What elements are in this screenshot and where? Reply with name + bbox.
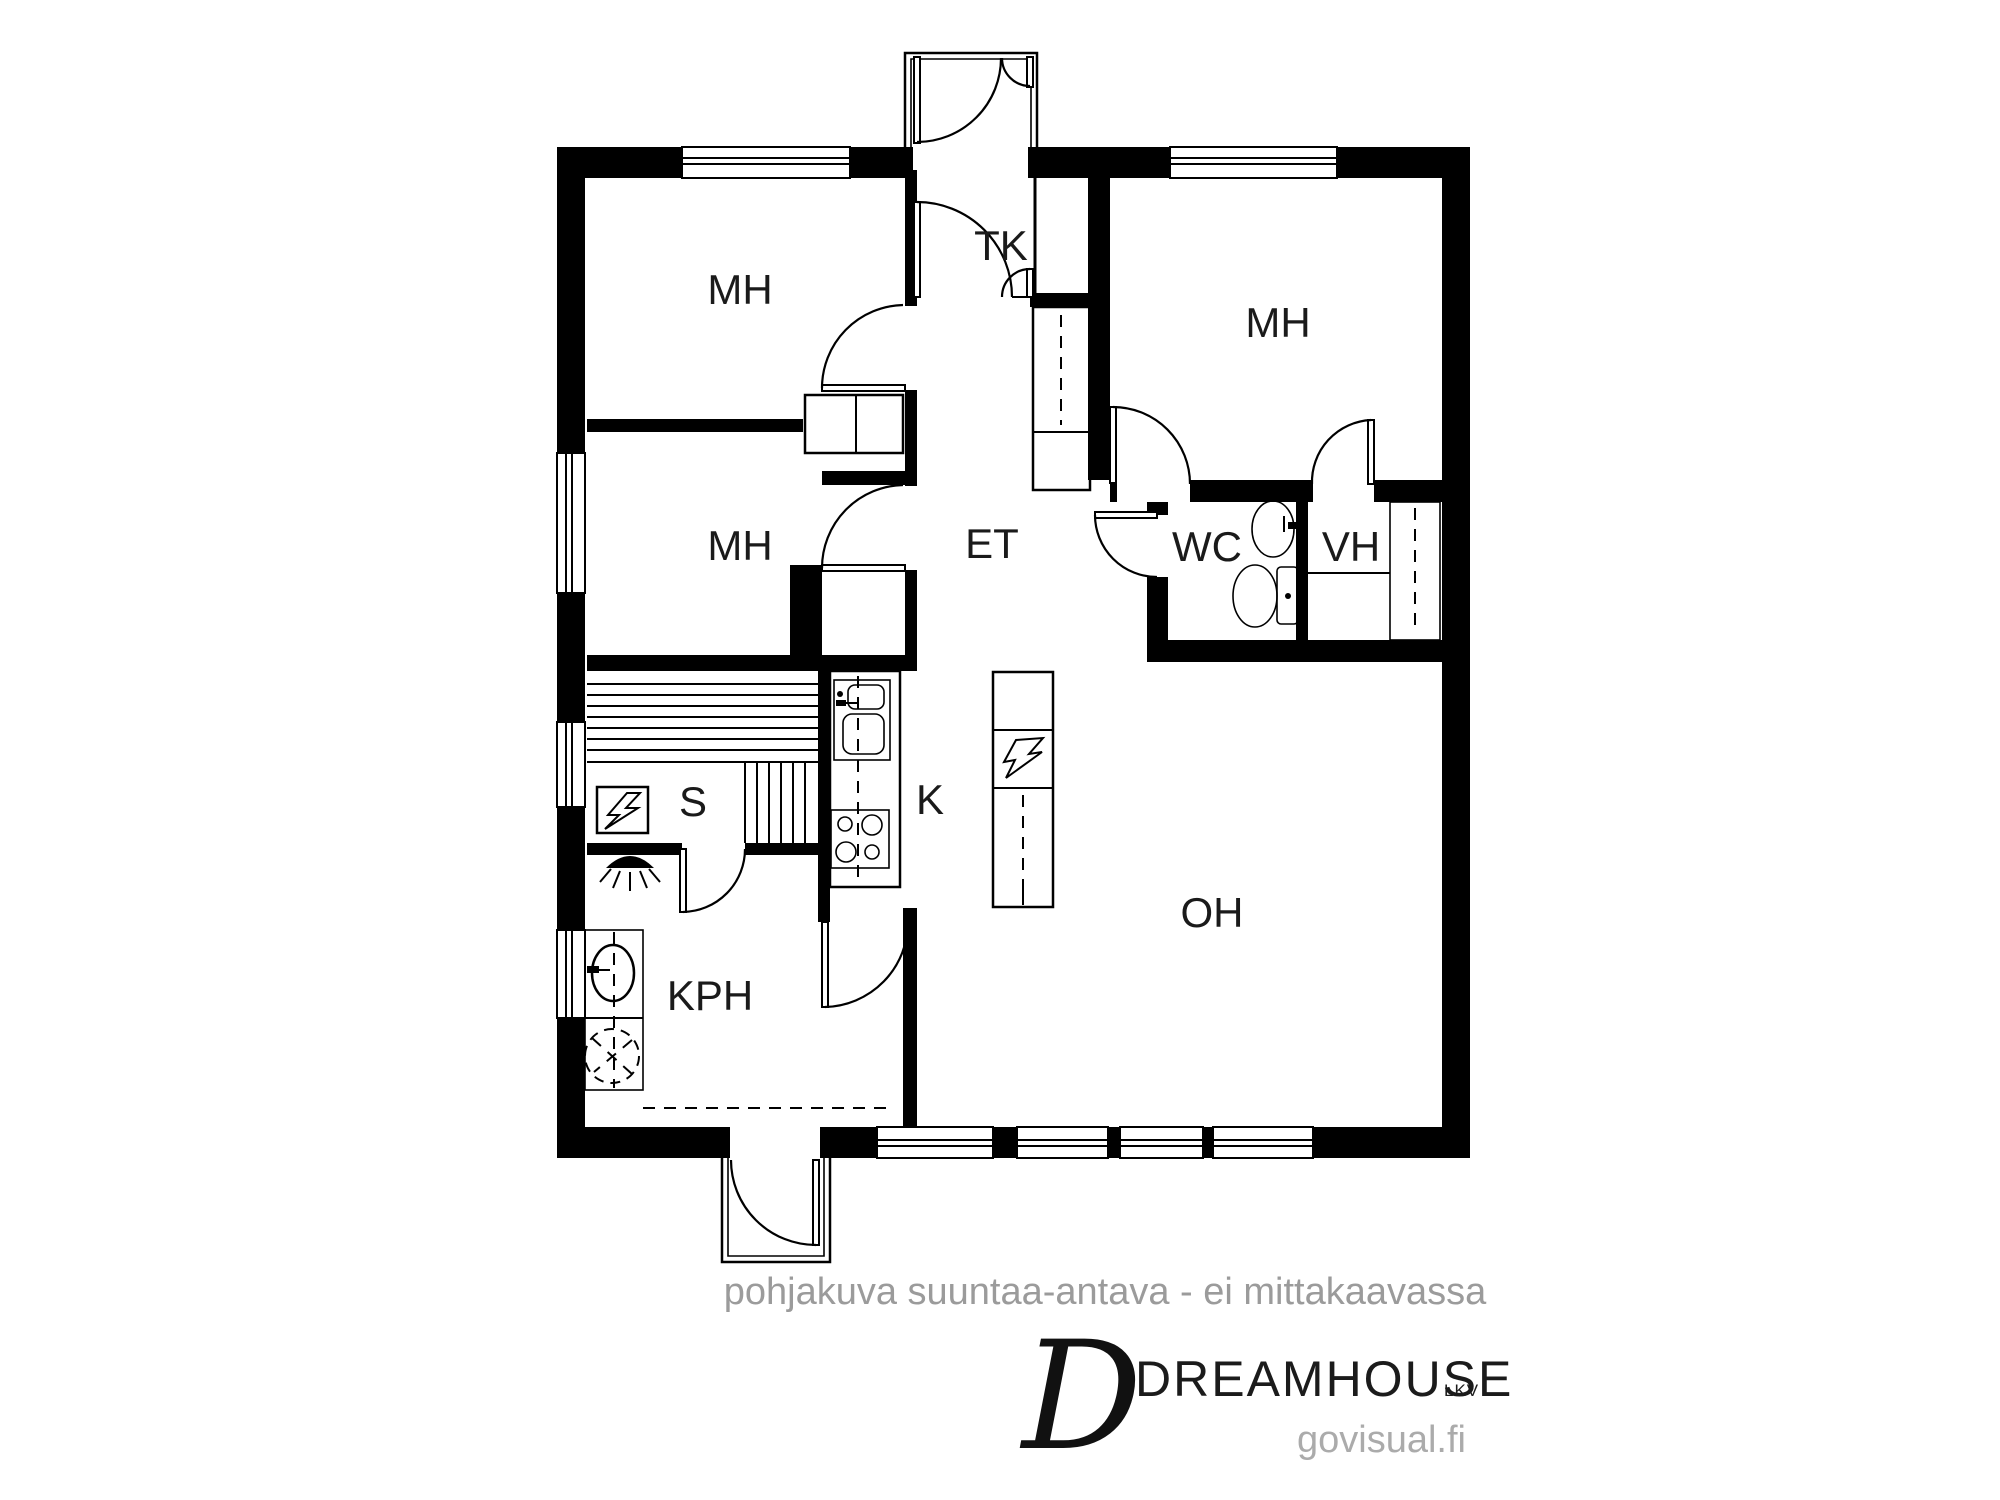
shower-icon: [600, 856, 660, 891]
room-label-toilet: WC: [1172, 523, 1242, 570]
room-label-entry-hall: ET: [965, 520, 1019, 567]
door-toilet: [1095, 512, 1157, 577]
window-sauna: [557, 722, 585, 807]
window-living-2: [1017, 1127, 1108, 1158]
bathroom-exterior-door-gap: [730, 1126, 820, 1159]
door-closet-room: [1312, 420, 1374, 484]
disclaimer-text: pohjakuva suuntaa-antava - ei mittakaava…: [724, 1271, 1487, 1313]
door-bathroom: [822, 922, 908, 1007]
wc-sink-icon: [1252, 501, 1298, 557]
room-label-vestibule: TK: [974, 222, 1028, 269]
bathroom-fittings: [585, 930, 893, 1108]
door-bedroom-right: [1110, 407, 1190, 484]
brand-website: govisual.fi: [1297, 1419, 1466, 1461]
stove-icon: [831, 810, 889, 868]
room-label-closet-room: VH: [1322, 523, 1380, 570]
closet-hall: [1033, 307, 1090, 490]
window-bedroom-mid-left: [557, 453, 585, 593]
footer: pohjakuva suuntaa-antava - ei mittakaava…: [724, 1271, 1514, 1484]
door-bedroom-mid-left: [822, 485, 917, 571]
door-bathroom-exterior: [722, 1158, 830, 1262]
brand-logo: D DREAMHOUSE LKV govisual.fi: [1019, 1310, 1513, 1484]
kitchen-counter: [830, 671, 900, 887]
room-label-sauna: S: [679, 778, 707, 825]
door-sauna: [680, 849, 745, 912]
interior-doors: [680, 305, 1374, 1262]
room-label-living-room: OH: [1181, 889, 1244, 936]
floorplan-page: MH MH MH TK ET WC VH S K KPH OH pohjakuv…: [0, 0, 2000, 1500]
room-label-kitchen: K: [916, 776, 944, 823]
wc-fittings: [1233, 501, 1298, 627]
fireplace-icon: [993, 672, 1053, 907]
sauna-heater-icon: [597, 787, 648, 833]
vestibule-wall-gap: [913, 146, 1028, 179]
window-living-1: [877, 1127, 993, 1158]
room-label-bedroom-mid-left: MH: [707, 522, 772, 569]
floorplan-drawing: MH MH MH TK ET WC VH S K KPH OH pohjakuv…: [0, 0, 2000, 1500]
window-bathroom: [557, 930, 585, 1018]
room-label-bathroom: KPH: [667, 972, 753, 1019]
kitchen-sink-icon: [834, 680, 890, 760]
front-door: [914, 57, 1033, 143]
window-bedroom-top-left: [682, 147, 850, 178]
brand-logo-initial: D: [1019, 1310, 1142, 1484]
closet-bedroom-top-left: [805, 395, 903, 453]
door-bedroom-top-left: [822, 305, 917, 391]
window-living-4: [1213, 1127, 1313, 1158]
toilet-icon: [1233, 565, 1298, 627]
washing-machine-icon: [585, 1029, 639, 1083]
window-bedroom-right: [1170, 147, 1337, 178]
brand-suffix: LKV: [1444, 1381, 1479, 1400]
window-living-3: [1120, 1127, 1203, 1158]
room-label-bedroom-right: MH: [1245, 299, 1310, 346]
bathroom-sink-icon: [587, 945, 634, 1001]
room-label-bedroom-top-left: MH: [707, 266, 772, 313]
